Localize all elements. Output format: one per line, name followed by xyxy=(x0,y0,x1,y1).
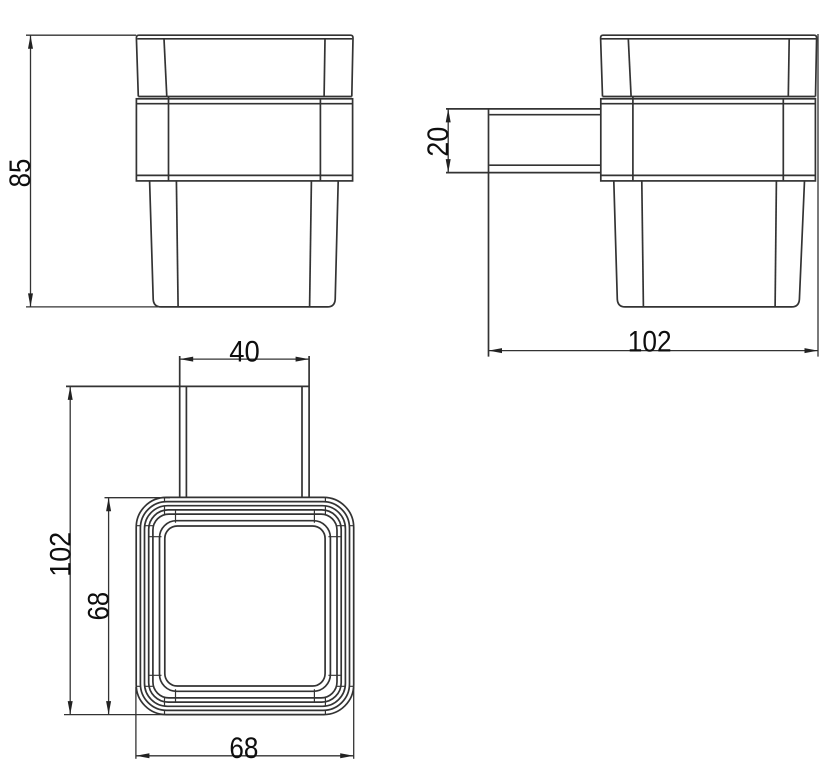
svg-text:20: 20 xyxy=(422,127,455,157)
svg-text:102: 102 xyxy=(628,325,672,358)
svg-text:85: 85 xyxy=(4,159,37,188)
svg-text:68: 68 xyxy=(82,592,115,621)
svg-text:102: 102 xyxy=(44,532,77,577)
svg-text:68: 68 xyxy=(229,732,258,765)
svg-text:40: 40 xyxy=(229,335,260,368)
